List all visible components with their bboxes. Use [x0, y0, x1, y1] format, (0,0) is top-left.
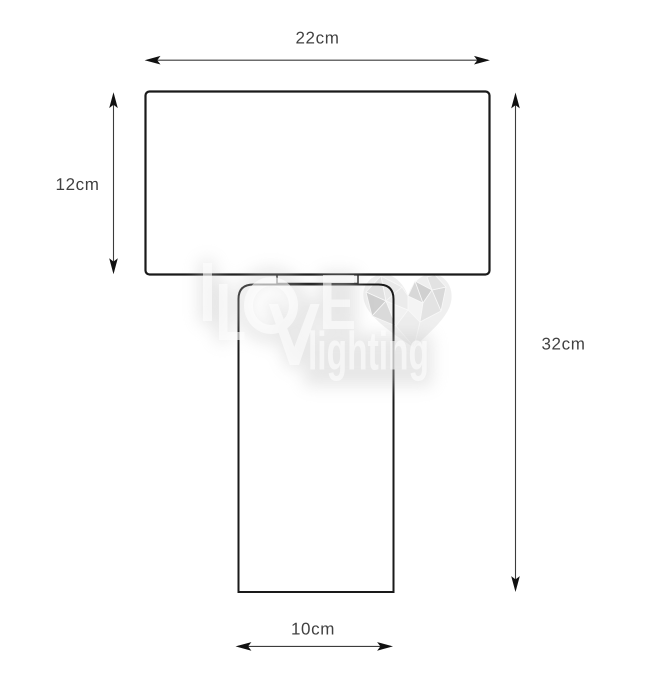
svg-text:12cm: 12cm [56, 175, 100, 194]
svg-text:32cm: 32cm [542, 335, 586, 354]
svg-text:10cm: 10cm [291, 619, 335, 638]
svg-text:lighting: lighting [308, 322, 429, 382]
svg-text:22cm: 22cm [296, 29, 340, 48]
